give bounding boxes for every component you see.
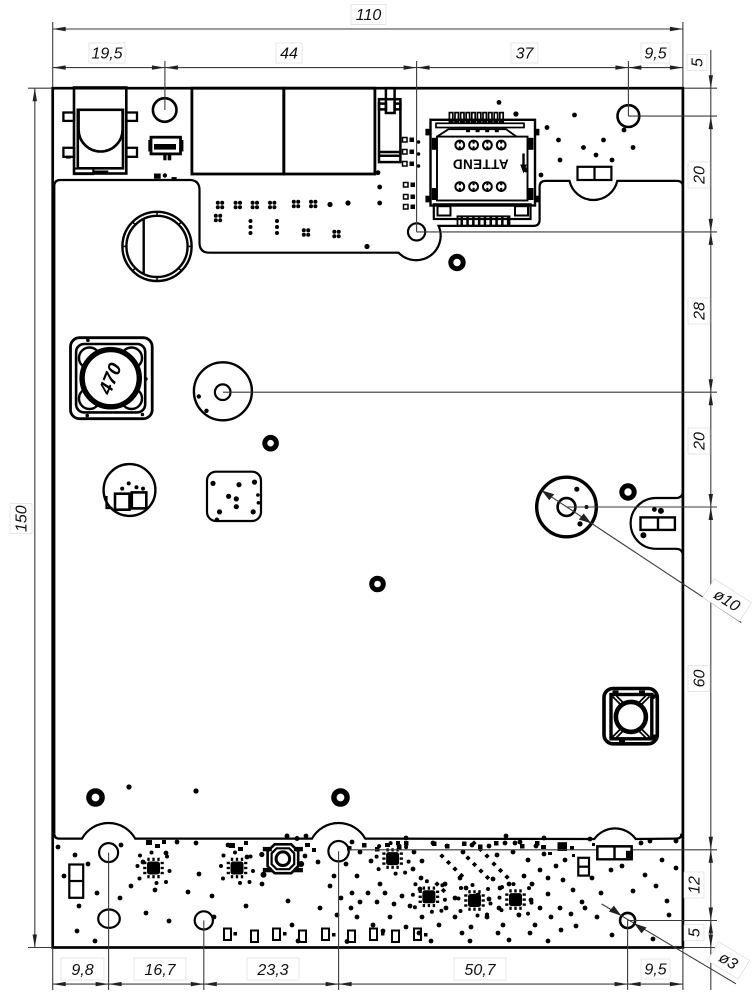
svg-text:9,8: 9,8 (71, 962, 93, 979)
svg-text:50,7: 50,7 (464, 962, 496, 979)
svg-text:20: 20 (692, 166, 709, 185)
svg-text:5: 5 (687, 928, 704, 937)
svg-text:5: 5 (690, 58, 707, 67)
svg-text:19,5: 19,5 (91, 46, 122, 63)
svg-text:150: 150 (14, 505, 31, 532)
svg-text:44: 44 (280, 46, 298, 63)
svg-text:110: 110 (356, 7, 382, 24)
svg-text:12: 12 (687, 876, 704, 894)
svg-text:23,3: 23,3 (256, 962, 288, 979)
svg-text:ATTEND: ATTEND (452, 157, 508, 172)
svg-text:20: 20 (692, 432, 709, 451)
svg-text:9,5: 9,5 (644, 962, 666, 979)
svg-text:37: 37 (516, 46, 535, 63)
svg-text:60: 60 (692, 670, 709, 688)
svg-text:28: 28 (692, 302, 709, 321)
svg-text:16,7: 16,7 (144, 962, 176, 979)
svg-text:9,5: 9,5 (644, 46, 666, 63)
